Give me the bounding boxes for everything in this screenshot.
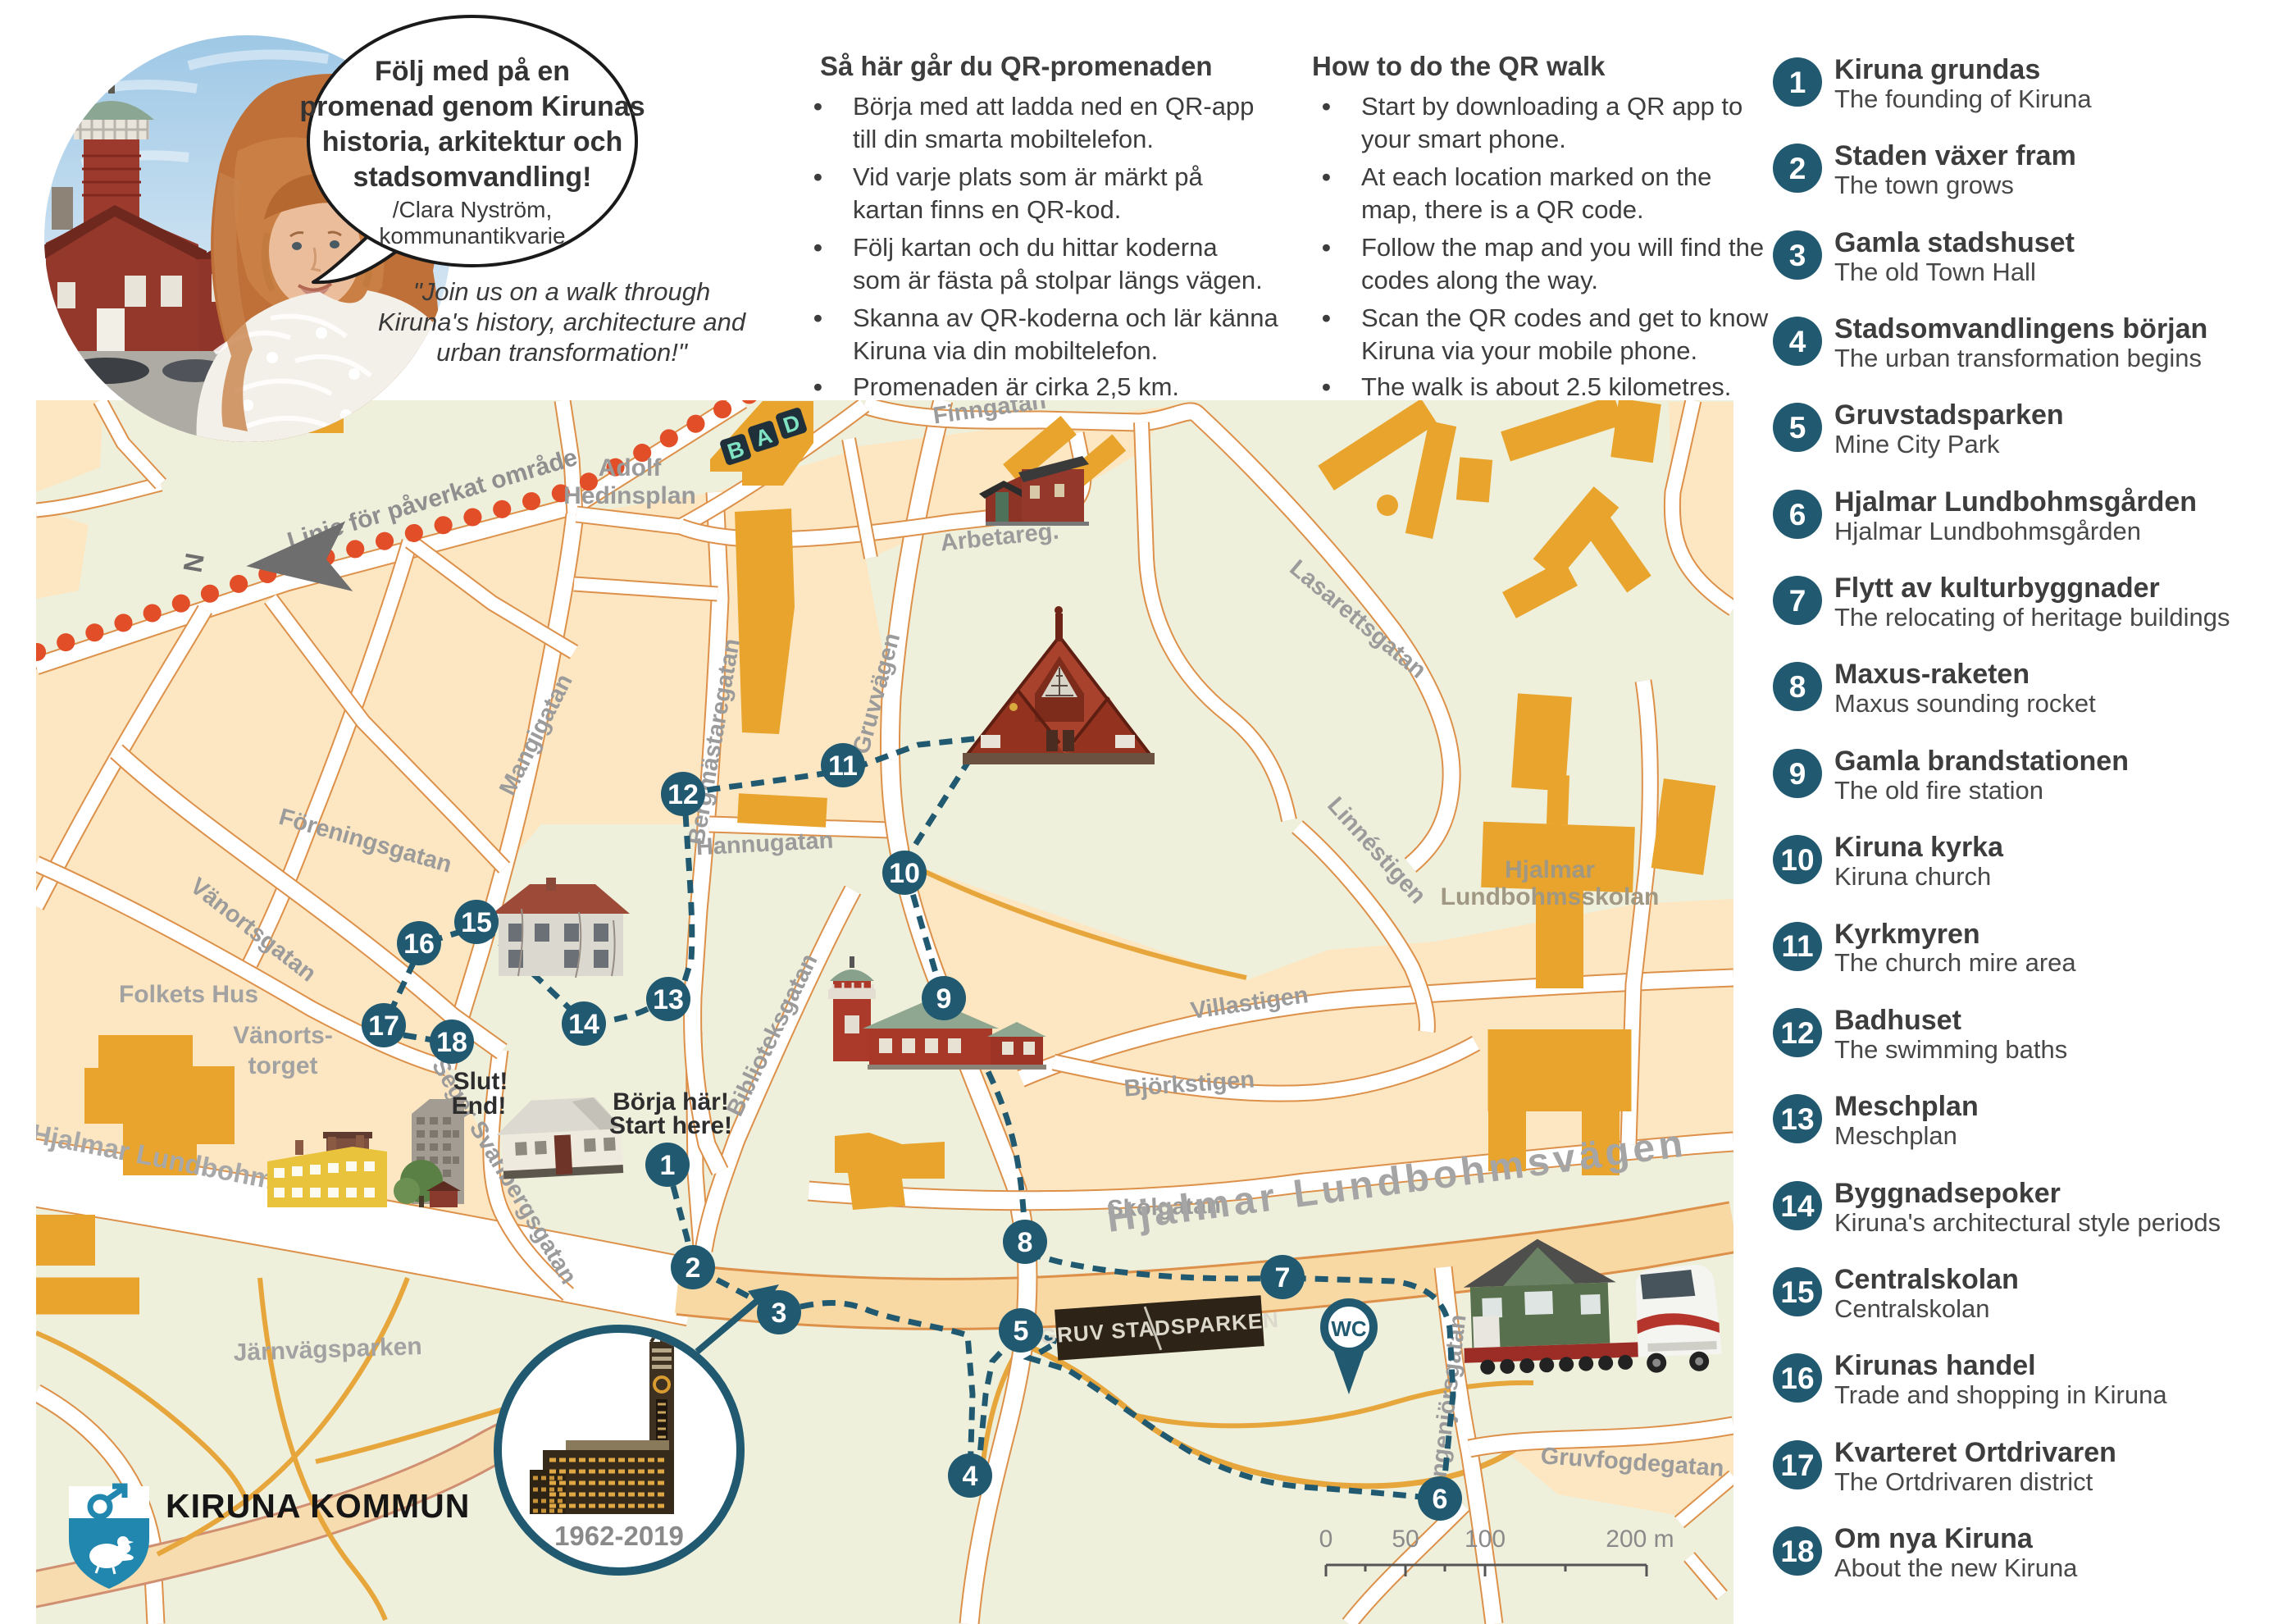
svg-text:9: 9 — [936, 983, 952, 1015]
svg-text:Kyrkmyren: Kyrkmyren — [1834, 919, 1980, 950]
svg-text:/Clara Nyström,: /Clara Nyström, — [393, 197, 552, 222]
svg-text:The Ortdrivaren district: The Ortdrivaren district — [1834, 1467, 2093, 1496]
svg-text:16: 16 — [403, 928, 435, 960]
svg-text:Hjalmar: Hjalmar — [1505, 856, 1595, 883]
svg-text:Följ kartan och du hittar kode: Följ kartan och du hittar koderna — [853, 233, 1218, 262]
svg-text:4: 4 — [963, 1461, 978, 1492]
svg-text:Kiruna's architectural style p: Kiruna's architectural style periods — [1834, 1208, 2221, 1237]
svg-text:Staden växer fram: Staden växer fram — [1834, 140, 2076, 171]
svg-text:Vänorts-: Vänorts- — [233, 1022, 333, 1049]
svg-text:5: 5 — [1789, 411, 1806, 445]
svg-text:The walk is about 2.5 kilometr: The walk is about 2.5 kilometres. — [1361, 372, 1731, 401]
svg-text:Kirunas handel: Kirunas handel — [1834, 1350, 2036, 1381]
svg-text:Kiruna kyrka: Kiruna kyrka — [1834, 832, 2004, 863]
svg-text:•: • — [813, 233, 822, 262]
svg-text:Följ med på en: Följ med på en — [375, 56, 570, 87]
svg-text:Meschplan: Meschplan — [1834, 1091, 1979, 1122]
svg-text:Meschplan: Meschplan — [1834, 1121, 1957, 1150]
svg-text:Scan the QR codes and get to k: Scan the QR codes and get to know — [1361, 303, 1769, 332]
svg-text:your smart phone.: your smart phone. — [1361, 125, 1566, 153]
svg-text:The relocating of heritage bui: The relocating of heritage buildings — [1834, 603, 2230, 632]
svg-text:Lundbohmsskolan: Lundbohmsskolan — [1441, 883, 1660, 910]
svg-text:2: 2 — [1789, 152, 1806, 185]
svg-text:"Join us on a walk through: "Join us on a walk through — [413, 277, 711, 306]
svg-text:Flytt av kulturbyggnader: Flytt av kulturbyggnader — [1834, 573, 2160, 604]
svg-text:14: 14 — [568, 1009, 599, 1040]
svg-text:Badhuset: Badhuset — [1834, 1005, 1961, 1036]
svg-text:4: 4 — [1789, 325, 1806, 358]
svg-text:6: 6 — [1789, 498, 1806, 531]
svg-text:•: • — [1322, 303, 1331, 332]
svg-text:13: 13 — [653, 984, 684, 1015]
svg-text:15: 15 — [1780, 1275, 1814, 1309]
svg-text:1: 1 — [660, 1150, 676, 1181]
svg-text:Kiruna's history, architecture: Kiruna's history, architecture and — [378, 308, 747, 336]
svg-text:9: 9 — [1789, 757, 1806, 791]
svg-text:At each location marked on the: At each location marked on the — [1361, 162, 1711, 191]
svg-text:1: 1 — [1789, 66, 1806, 99]
svg-text:The swimming baths: The swimming baths — [1834, 1035, 2067, 1064]
svg-text:stadsomvandling!: stadsomvandling! — [353, 162, 592, 193]
svg-text:Kvarteret Ortdrivaren: Kvarteret Ortdrivaren — [1834, 1437, 2116, 1468]
svg-text:Start here!: Start here! — [609, 1112, 732, 1139]
svg-text:10: 10 — [889, 858, 920, 889]
svg-text:13: 13 — [1780, 1102, 1814, 1136]
svg-text:Gamla stadshuset: Gamla stadshuset — [1834, 227, 2075, 258]
svg-text:Centralskolan: Centralskolan — [1834, 1264, 2019, 1295]
svg-text:The church mire area: The church mire area — [1834, 948, 2076, 977]
svg-text:100: 100 — [1465, 1526, 1506, 1553]
svg-text:The town grows: The town grows — [1834, 171, 2014, 199]
svg-text:urban transformation!": urban transformation!" — [436, 338, 689, 367]
svg-text:Kiruna via your mobile phone.: Kiruna via your mobile phone. — [1361, 336, 1697, 365]
svg-text:Trade and shopping in Kiruna: Trade and shopping in Kiruna — [1834, 1380, 2167, 1409]
svg-text:Börja med att ladda ned en QR-: Börja med att ladda ned en QR-app — [853, 92, 1254, 121]
svg-text:The founding of Kiruna: The founding of Kiruna — [1834, 84, 2092, 113]
svg-text:The old fire station: The old fire station — [1834, 776, 2043, 805]
svg-text:•: • — [813, 92, 822, 121]
svg-text:Maxus sounding rocket: Maxus sounding rocket — [1834, 689, 2096, 718]
svg-text:•: • — [1322, 162, 1331, 191]
svg-text:KIRUNA KOMMUN: KIRUNA KOMMUN — [166, 1487, 470, 1525]
svg-text:Maxus-raketen: Maxus-raketen — [1834, 659, 2029, 690]
svg-text:End!: End! — [452, 1093, 507, 1120]
svg-text:till din smarta mobiltelefon.: till din smarta mobiltelefon. — [853, 125, 1154, 153]
svg-text:Hjalmar Lundbohmsgården: Hjalmar Lundbohmsgården — [1834, 486, 2197, 518]
svg-text:Adolf: Adolf — [599, 454, 663, 481]
svg-text:historia, arkitektur och: historia, arkitektur och — [322, 126, 623, 157]
svg-text:7: 7 — [1275, 1262, 1291, 1293]
svg-text:5: 5 — [1014, 1316, 1029, 1347]
svg-text:200 m: 200 m — [1606, 1526, 1674, 1553]
svg-text:•: • — [1322, 372, 1331, 401]
svg-text:Hjalmar Lundbohmsgården: Hjalmar Lundbohmsgården — [1834, 517, 2141, 545]
svg-text:0: 0 — [1319, 1526, 1333, 1553]
svg-text:•: • — [813, 162, 822, 191]
svg-text:torget: torget — [248, 1052, 318, 1079]
svg-text:The old Town Hall: The old Town Hall — [1834, 258, 2036, 286]
svg-text:promenad genom Kirunas: promenad genom Kirunas — [299, 91, 645, 122]
svg-text:Folkets Hus: Folkets Hus — [119, 981, 258, 1008]
svg-text:WC: WC — [1331, 1316, 1367, 1341]
svg-text:Kiruna church: Kiruna church — [1834, 862, 1991, 891]
svg-text:Follow the map and you will fi: Follow the map and you will find the — [1361, 233, 1764, 262]
svg-text:•: • — [1322, 233, 1331, 262]
svg-text:•: • — [813, 303, 822, 332]
svg-text:7: 7 — [1789, 584, 1806, 618]
svg-text:17: 17 — [1780, 1448, 1814, 1482]
svg-text:3: 3 — [1789, 239, 1806, 272]
svg-text:How to do the QR walk: How to do the QR walk — [1312, 51, 1606, 81]
svg-text:12: 12 — [1780, 1016, 1814, 1050]
svg-text:10: 10 — [1780, 843, 1814, 877]
svg-text:Start by downloading a QR app: Start by downloading a QR app to — [1361, 92, 1742, 121]
svg-text:16: 16 — [1780, 1362, 1814, 1395]
svg-text:2: 2 — [686, 1252, 701, 1284]
svg-text:Så här går du QR-promenaden: Så här går du QR-promenaden — [820, 51, 1213, 81]
svg-text:Hedinsplan: Hedinsplan — [563, 482, 696, 509]
svg-text:1962-2019: 1962-2019 — [554, 1521, 684, 1551]
svg-text:•: • — [813, 372, 822, 401]
svg-text:8: 8 — [1789, 670, 1806, 704]
svg-text:som är fästa på stolpar längs: som är fästa på stolpar längs vägen. — [853, 266, 1263, 294]
svg-text:Vid varje plats som är märkt p: Vid varje plats som är märkt på — [853, 162, 1203, 191]
svg-text:codes along the way.: codes along the way. — [1361, 266, 1598, 294]
svg-text:kartan finns en QR-kod.: kartan finns en QR-kod. — [853, 195, 1121, 224]
svg-text:18: 18 — [1780, 1535, 1814, 1568]
svg-text:•: • — [1322, 92, 1331, 121]
svg-text:Kiruna via din mobiltelefon.: Kiruna via din mobiltelefon. — [853, 336, 1158, 365]
svg-text:Stadsomvandlingens början: Stadsomvandlingens början — [1834, 313, 2207, 344]
svg-text:15: 15 — [461, 907, 492, 938]
svg-text:About the new Kiruna: About the new Kiruna — [1834, 1553, 2078, 1582]
svg-text:Mine City Park: Mine City Park — [1834, 430, 2000, 458]
svg-text:18: 18 — [436, 1027, 467, 1058]
svg-text:The urban transformation begin: The urban transformation begins — [1834, 344, 2202, 372]
svg-text:Skanna av QR-koderna och lär k: Skanna av QR-koderna och lär känna — [853, 303, 1278, 332]
svg-text:11: 11 — [828, 750, 858, 782]
svg-text:kommunantikvarie: kommunantikvarie — [379, 223, 565, 249]
svg-text:8: 8 — [1018, 1227, 1033, 1258]
svg-text:Gruvstadsparken: Gruvstadsparken — [1834, 399, 2064, 431]
svg-text:12: 12 — [667, 779, 699, 810]
svg-text:Kiruna grundas: Kiruna grundas — [1834, 54, 2040, 85]
svg-text:Om nya Kiruna: Om nya Kiruna — [1834, 1523, 2034, 1554]
svg-text:14: 14 — [1780, 1189, 1815, 1223]
svg-text:17: 17 — [368, 1010, 399, 1042]
svg-text:3: 3 — [772, 1298, 787, 1329]
svg-text:map, there is a QR code.: map, there is a QR code. — [1361, 195, 1644, 224]
svg-text:11: 11 — [1781, 929, 1813, 963]
svg-text:6: 6 — [1433, 1484, 1448, 1515]
svg-text:50: 50 — [1392, 1526, 1419, 1553]
svg-text:Promenaden är cirka 2,5 km.: Promenaden är cirka 2,5 km. — [853, 372, 1179, 401]
svg-text:Gamla brandstationen: Gamla brandstationen — [1834, 746, 2129, 777]
svg-text:Byggnadsepoker: Byggnadsepoker — [1834, 1178, 2061, 1209]
svg-text:Centralskolan: Centralskolan — [1834, 1294, 1990, 1323]
svg-text:Slut!: Slut! — [453, 1068, 508, 1095]
